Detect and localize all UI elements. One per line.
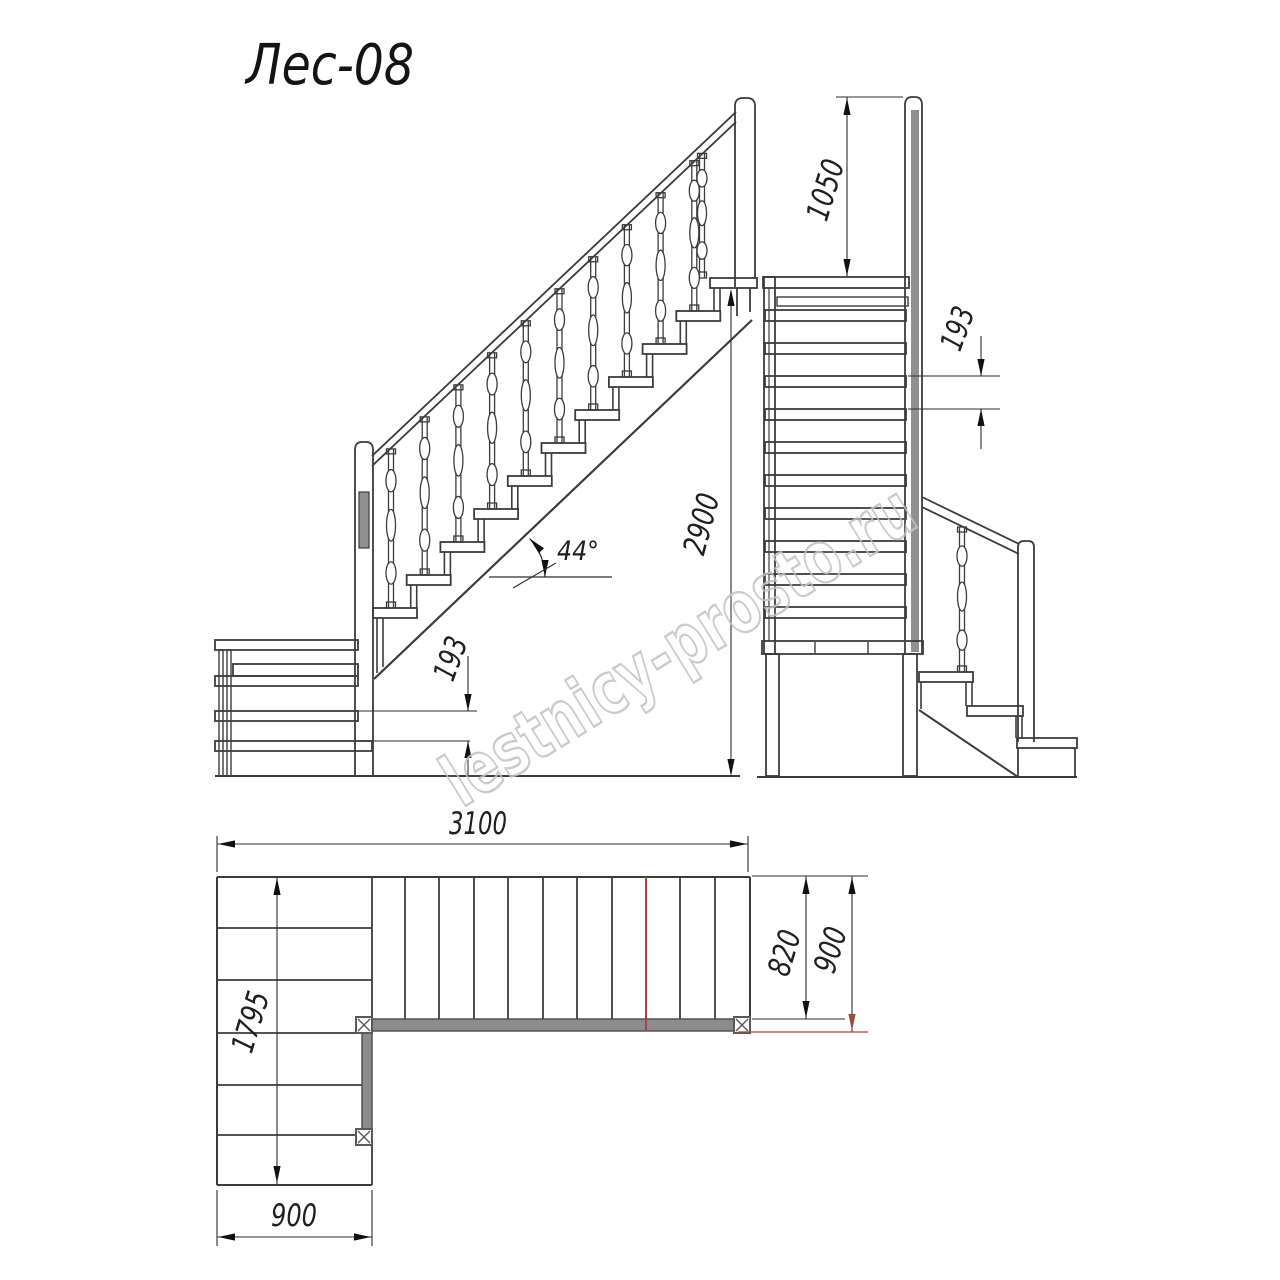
front-tread: [765, 409, 906, 420]
plan-handrail: [372, 1019, 736, 1031]
front-tread: [765, 310, 906, 321]
dimension-arrow: [727, 289, 734, 306]
baluster-detail: [588, 277, 598, 298]
baluster-detail: [622, 333, 632, 354]
baluster-detail: [454, 445, 463, 476]
dim-lower-flight-length: 1795: [225, 987, 278, 1057]
baluster-detail: [487, 373, 497, 395]
baluster-detail: [521, 341, 531, 363]
baluster-detail: [656, 250, 665, 280]
dim-handrail-height: 1050: [800, 155, 853, 225]
tread-back-edge: [777, 297, 908, 306]
dim-front-riser: 193: [934, 302, 983, 356]
baluster-detail: [622, 283, 631, 313]
baluster-detail: [521, 431, 531, 453]
step-tread: [542, 443, 586, 453]
step-tread: [643, 344, 687, 354]
step-tread: [967, 706, 1023, 716]
dimension-arrow: [843, 259, 850, 276]
landing-platform: [762, 641, 923, 654]
front-elevation-dimensions: 1050 193: [800, 97, 1000, 449]
baluster-detail: [656, 212, 666, 233]
lower-flight-plank: [215, 711, 358, 721]
dim-total-height: 2900: [677, 489, 728, 558]
baluster-detail: [386, 470, 396, 492]
step-tread: [508, 476, 552, 486]
plan-view: [217, 877, 750, 1185]
lower-stringer: [919, 710, 1018, 777]
dimension-arrow: [843, 98, 850, 115]
step-tread: [575, 410, 619, 420]
platform-leg: [766, 654, 779, 776]
front-tread: [765, 442, 906, 453]
angle-leader: [513, 563, 556, 588]
dimension-arrow: [977, 409, 984, 426]
lower-newel-post: [1018, 541, 1034, 742]
lower-flight-plank: [215, 676, 358, 686]
plan-handrail: [362, 1031, 372, 1129]
step-tread: [373, 608, 417, 618]
baluster-detail: [958, 582, 967, 611]
step-tread: [407, 575, 451, 585]
baluster-detail: [622, 245, 632, 266]
step-tread: [609, 377, 653, 387]
baluster-detail: [689, 267, 699, 288]
baluster-detail: [386, 562, 396, 584]
baluster-detail: [698, 201, 707, 226]
dim-lower-flight-width: 900: [271, 1198, 317, 1234]
landing-tread: [710, 278, 757, 288]
baluster-detail: [689, 180, 699, 201]
step-tread: [440, 542, 484, 552]
top-newel-post: [735, 98, 755, 287]
dimension-arrow: [218, 1233, 235, 1240]
dimension-arrow: [848, 1014, 855, 1031]
stair-technical-drawing: Лес-08 2900 193 44° 1050 193 3100 1795 9…: [0, 0, 1280, 1280]
dimension-arrow: [848, 877, 855, 894]
dimension-arrow: [977, 359, 984, 376]
floor-edge: [763, 277, 909, 288]
dimension-arrow: [802, 877, 809, 894]
dimension-arrow: [727, 759, 734, 776]
dim-flight-clear-width: 820: [761, 926, 809, 981]
handrail: [372, 112, 736, 456]
support-post: [227, 650, 231, 776]
dimension-arrow: [273, 1166, 280, 1183]
baluster-detail: [957, 546, 967, 566]
step-tread: [474, 509, 518, 519]
dim-flight-overall-width: 900: [807, 923, 855, 978]
dimension-arrow: [354, 1233, 371, 1240]
handrail: [372, 122, 736, 466]
dimension-arrow: [273, 878, 280, 895]
support-post: [219, 650, 223, 776]
lower-flight-plank: [233, 664, 358, 676]
dimension-arrow: [464, 694, 471, 711]
lower-flight-plank: [215, 640, 358, 650]
drawing-title: Лес-08: [244, 33, 414, 98]
dimension-arrow: [802, 1001, 809, 1018]
blueprint-page: Лес-08 2900 193 44° 1050 193 3100 1795 9…: [0, 0, 1280, 1280]
newel-inlay: [359, 492, 369, 548]
lower-flight-plank: [215, 741, 372, 751]
baluster-detail: [453, 405, 463, 427]
front-tread: [765, 343, 906, 354]
baluster-detail: [697, 242, 707, 259]
baluster-detail: [690, 218, 699, 248]
baluster-detail: [521, 380, 530, 411]
baluster-detail: [420, 529, 430, 551]
dimension-arrow: [730, 840, 747, 847]
center-post-shade: [911, 110, 919, 652]
dim-stair-angle: 44°: [557, 536, 599, 567]
baluster-detail: [420, 437, 430, 459]
watermark-text: lestnicy-prosto.ru: [427, 468, 931, 823]
baluster-detail: [656, 300, 666, 321]
baluster-detail: [487, 464, 497, 486]
step-tread: [1017, 738, 1077, 748]
baluster-detail: [387, 509, 396, 541]
front-tread: [765, 376, 906, 387]
baluster-detail: [588, 366, 598, 387]
baluster-detail: [555, 309, 565, 331]
baluster-detail: [555, 347, 564, 378]
step-tread: [676, 311, 720, 321]
baluster-detail: [420, 477, 429, 509]
lower-handrail: [922, 507, 1019, 554]
step-tread: [919, 672, 973, 682]
lower-handrail: [922, 497, 1019, 544]
dimension-arrow: [218, 840, 235, 847]
baluster-detail: [555, 398, 565, 420]
baluster-detail: [957, 630, 967, 650]
baluster-detail: [453, 496, 463, 518]
platform-leg: [903, 654, 917, 776]
baluster-detail: [589, 315, 598, 346]
baluster-detail: [488, 412, 497, 443]
